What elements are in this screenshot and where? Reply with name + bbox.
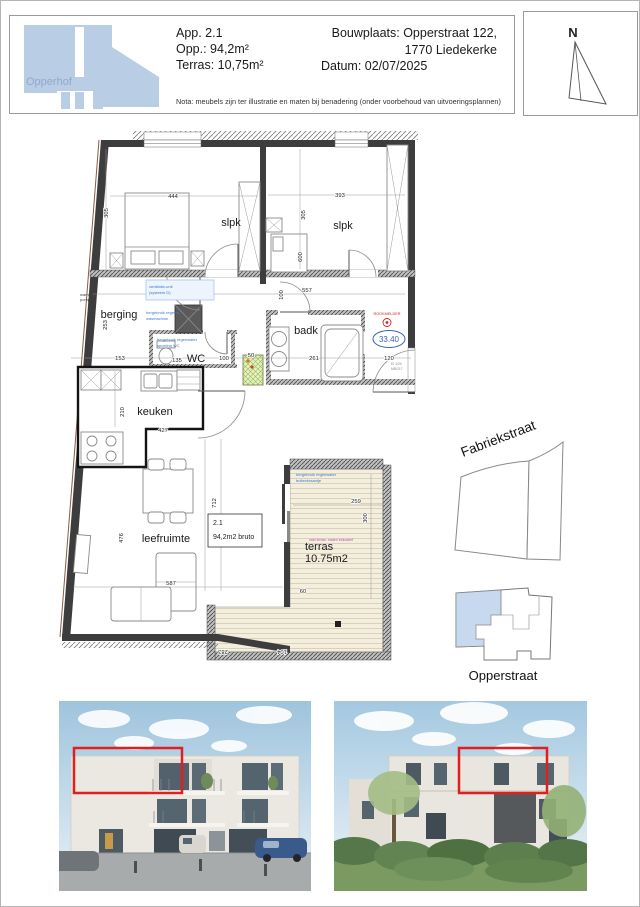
- room-label-keuken: keuken: [137, 406, 172, 418]
- site-info: Bouwplaats: Opperstraat 122, 1770 Liedek…: [321, 25, 497, 75]
- room-label-slpk1: slpk: [221, 217, 241, 229]
- dim: 60: [300, 589, 306, 595]
- room-label-badk: badk: [294, 325, 318, 337]
- floor-plan: 444 305 393 305 600 274 557 100 253 153 …: [53, 129, 449, 691]
- note-vent: ventilatie-unit: [149, 284, 173, 289]
- site-street-label: Opperstraat: [469, 668, 538, 683]
- app-area: Opp.: 94,2m²: [176, 42, 249, 56]
- note-buitenkraantje: hergebruik regenwater: [296, 472, 337, 477]
- dim: 50: [248, 353, 254, 359]
- site-address-line2: 1770 Liedekerke: [321, 42, 497, 59]
- room-label-slpk2: slpk: [333, 220, 353, 232]
- render-street-view: [59, 701, 311, 891]
- parcel-right: [527, 442, 563, 560]
- dim: 587: [166, 581, 176, 587]
- room-label-terras: terras: [305, 541, 334, 553]
- unit-info-box: 2.1 94,2m2 bruto: [208, 514, 262, 547]
- site-plan: Opperstraat: [456, 588, 552, 683]
- logo-text: Opperhof: [26, 76, 73, 88]
- level-value: 33.40: [379, 335, 400, 344]
- parcel-left: [455, 461, 529, 559]
- dim: 210: [120, 407, 126, 417]
- dim: 427: [158, 428, 168, 434]
- opperhof-logo: Opperhof: [19, 19, 169, 109]
- dim: 135: [172, 358, 182, 364]
- door-fire-rating: EI 1/2h: [391, 362, 402, 366]
- site-date: Datum: 02/07/2025: [321, 58, 497, 75]
- note-magenta: vast terras: maten indicatief: [309, 538, 353, 542]
- svg-text:spoeling WC: spoeling WC: [157, 343, 180, 348]
- dim: 393: [335, 193, 345, 199]
- site-address-line1: Bouwplaats: Opperstraat 122,: [321, 25, 497, 42]
- dim: 557: [302, 288, 312, 294]
- dim: 104: [276, 648, 286, 654]
- dim: 261: [309, 356, 319, 362]
- dim: 476: [119, 533, 125, 543]
- dim: 305: [301, 210, 307, 220]
- terras-area-value: 10.75m2: [305, 553, 348, 565]
- svg-text:buitenkraantje: buitenkraantje: [296, 478, 322, 483]
- location-maps: Fabriekstraat Opperstraat: [441, 417, 640, 692]
- north-label: N: [568, 25, 577, 40]
- apartment-info: App. 2.1 Opp.: 94,2m² Terras: 10,75m²: [176, 25, 264, 73]
- dim: 253: [103, 320, 109, 330]
- dim: 100: [279, 290, 285, 300]
- svg-text:(systeem D): (systeem D): [149, 290, 171, 295]
- room-label-wc: WC: [187, 353, 205, 365]
- dim: 100: [219, 356, 229, 362]
- plan-sheet: Opperhof App. 2.1 Opp.: 94,2m² Terras: 1…: [0, 0, 640, 907]
- compass-needle: [569, 42, 606, 104]
- dim: 153: [115, 356, 125, 362]
- dim: 259: [351, 499, 361, 505]
- note-wasmachine: hergebruik regenw.: [146, 310, 180, 315]
- svg-text:pomp: pomp: [80, 297, 91, 302]
- dim: 444: [168, 194, 178, 200]
- dim: 283: [218, 648, 228, 654]
- dim: 300: [363, 513, 369, 523]
- north-arrow: N: [523, 11, 636, 114]
- disclaimer-note: Nota: meubels zijn ter illustratie en ma…: [176, 97, 501, 106]
- room-label-leefruimte: leefruimte: [142, 533, 190, 545]
- dim: 600: [298, 252, 304, 262]
- street-map: Fabriekstraat: [455, 417, 563, 560]
- room-label-berging: berging: [101, 309, 138, 321]
- unit-area: 94,2m2 bruto: [213, 534, 254, 541]
- svg-text:wasmachine: wasmachine: [146, 316, 169, 321]
- note-spoeling: hergebruik regenwater: [157, 337, 198, 342]
- app-terrace: Terras: 10,75m²: [176, 58, 264, 72]
- svg-text:MB/217: MB/217: [391, 367, 403, 371]
- dim: 305: [104, 208, 110, 218]
- dim: 712: [212, 498, 218, 508]
- street-name-label: Fabriekstraat: [459, 417, 538, 459]
- unit-number: 2.1: [213, 520, 223, 527]
- terrace-area: [207, 459, 391, 660]
- rookmelder-label: ROOKMELDER: [373, 312, 400, 316]
- app-number: App. 2.1: [176, 26, 223, 40]
- render-garden-view: [334, 701, 587, 891]
- smoke-detector: ROOKMELDER 33.40: [373, 312, 405, 348]
- exterior-hatching: [133, 131, 418, 140]
